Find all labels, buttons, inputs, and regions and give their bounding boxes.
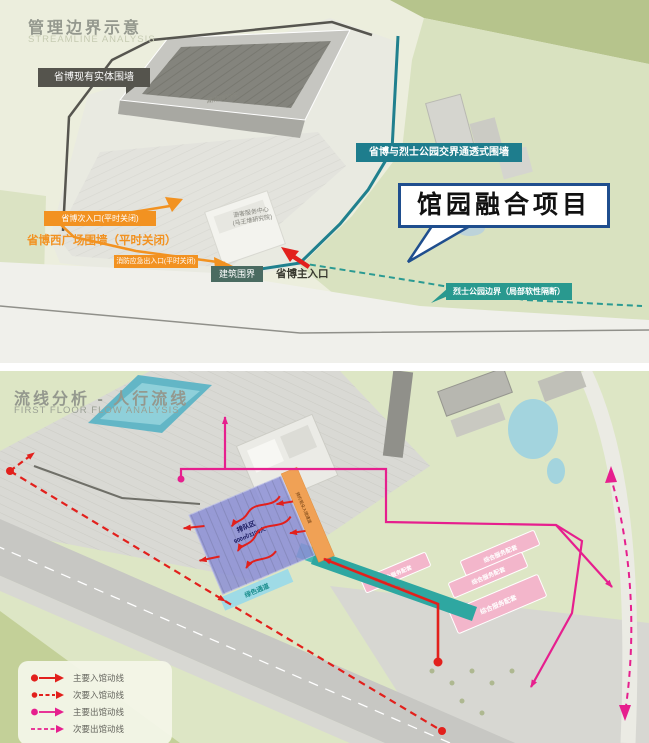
legend-item-main-exit: 主要出馆动线 (30, 704, 162, 719)
panel-subtitle: FIRST FLOOR FLOW ANALYSIS (14, 405, 180, 416)
solid-magenta-line-icon (30, 706, 66, 718)
management-boundary-panel: 管理边界示意 STREAMLINE ANALYSIS 省博现有实体围墙 湖南博物… (0, 0, 649, 363)
flow-analysis-panel: 综合服务配套 综合服务配套 综合服务配套 综合服务配套 常规观众入馆流线 (0, 371, 649, 743)
secondary-entrance-label: 省博次入口(平时关闭) (44, 211, 156, 226)
fire-exit-label: 消防应急出入口(平时关闭) (114, 255, 198, 268)
building-boundary-label: 建筑围界 (211, 266, 263, 282)
legend-item-main-entry: 主要入馆动线 (30, 670, 162, 685)
legend-item-secondary-exit: 次要出馆动线 (30, 721, 162, 736)
park-pond-small (547, 458, 565, 484)
project-callout: 馆园融合项目 (398, 183, 610, 228)
dashed-magenta-line-icon (30, 723, 66, 735)
legend-label: 次要入馆动线 (73, 689, 124, 701)
park-boundary-label: 烈士公园边界（局部软性隔断） (446, 283, 572, 300)
legend-item-secondary-entry: 次要入馆动线 (30, 687, 162, 702)
flow-legend: 主要入馆动线 次要入馆动线 主要出馆动线 (18, 661, 172, 743)
west-square-wall-label: 省博西广场围墙（平时关闭） (27, 232, 177, 248)
management-boundary-map (0, 0, 649, 363)
park-pond (508, 399, 558, 459)
panel-subtitle: STREAMLINE ANALYSIS (28, 34, 156, 45)
dashed-red-line-icon (30, 689, 66, 701)
solid-red-line-icon (30, 672, 66, 684)
main-entrance-label: 省博主入口 (276, 266, 329, 281)
existing-wall-label: 省博现有实体围墙 (38, 68, 150, 87)
transparent-wall-label: 省博与烈士公园交界通透式围墙 (356, 143, 522, 162)
legend-label: 主要出馆动线 (73, 706, 124, 718)
page: 管理边界示意 STREAMLINE ANALYSIS 省博现有实体围墙 湖南博物… (0, 0, 649, 743)
legend-label: 次要出馆动线 (73, 723, 124, 735)
legend-label: 主要入馆动线 (73, 672, 124, 684)
